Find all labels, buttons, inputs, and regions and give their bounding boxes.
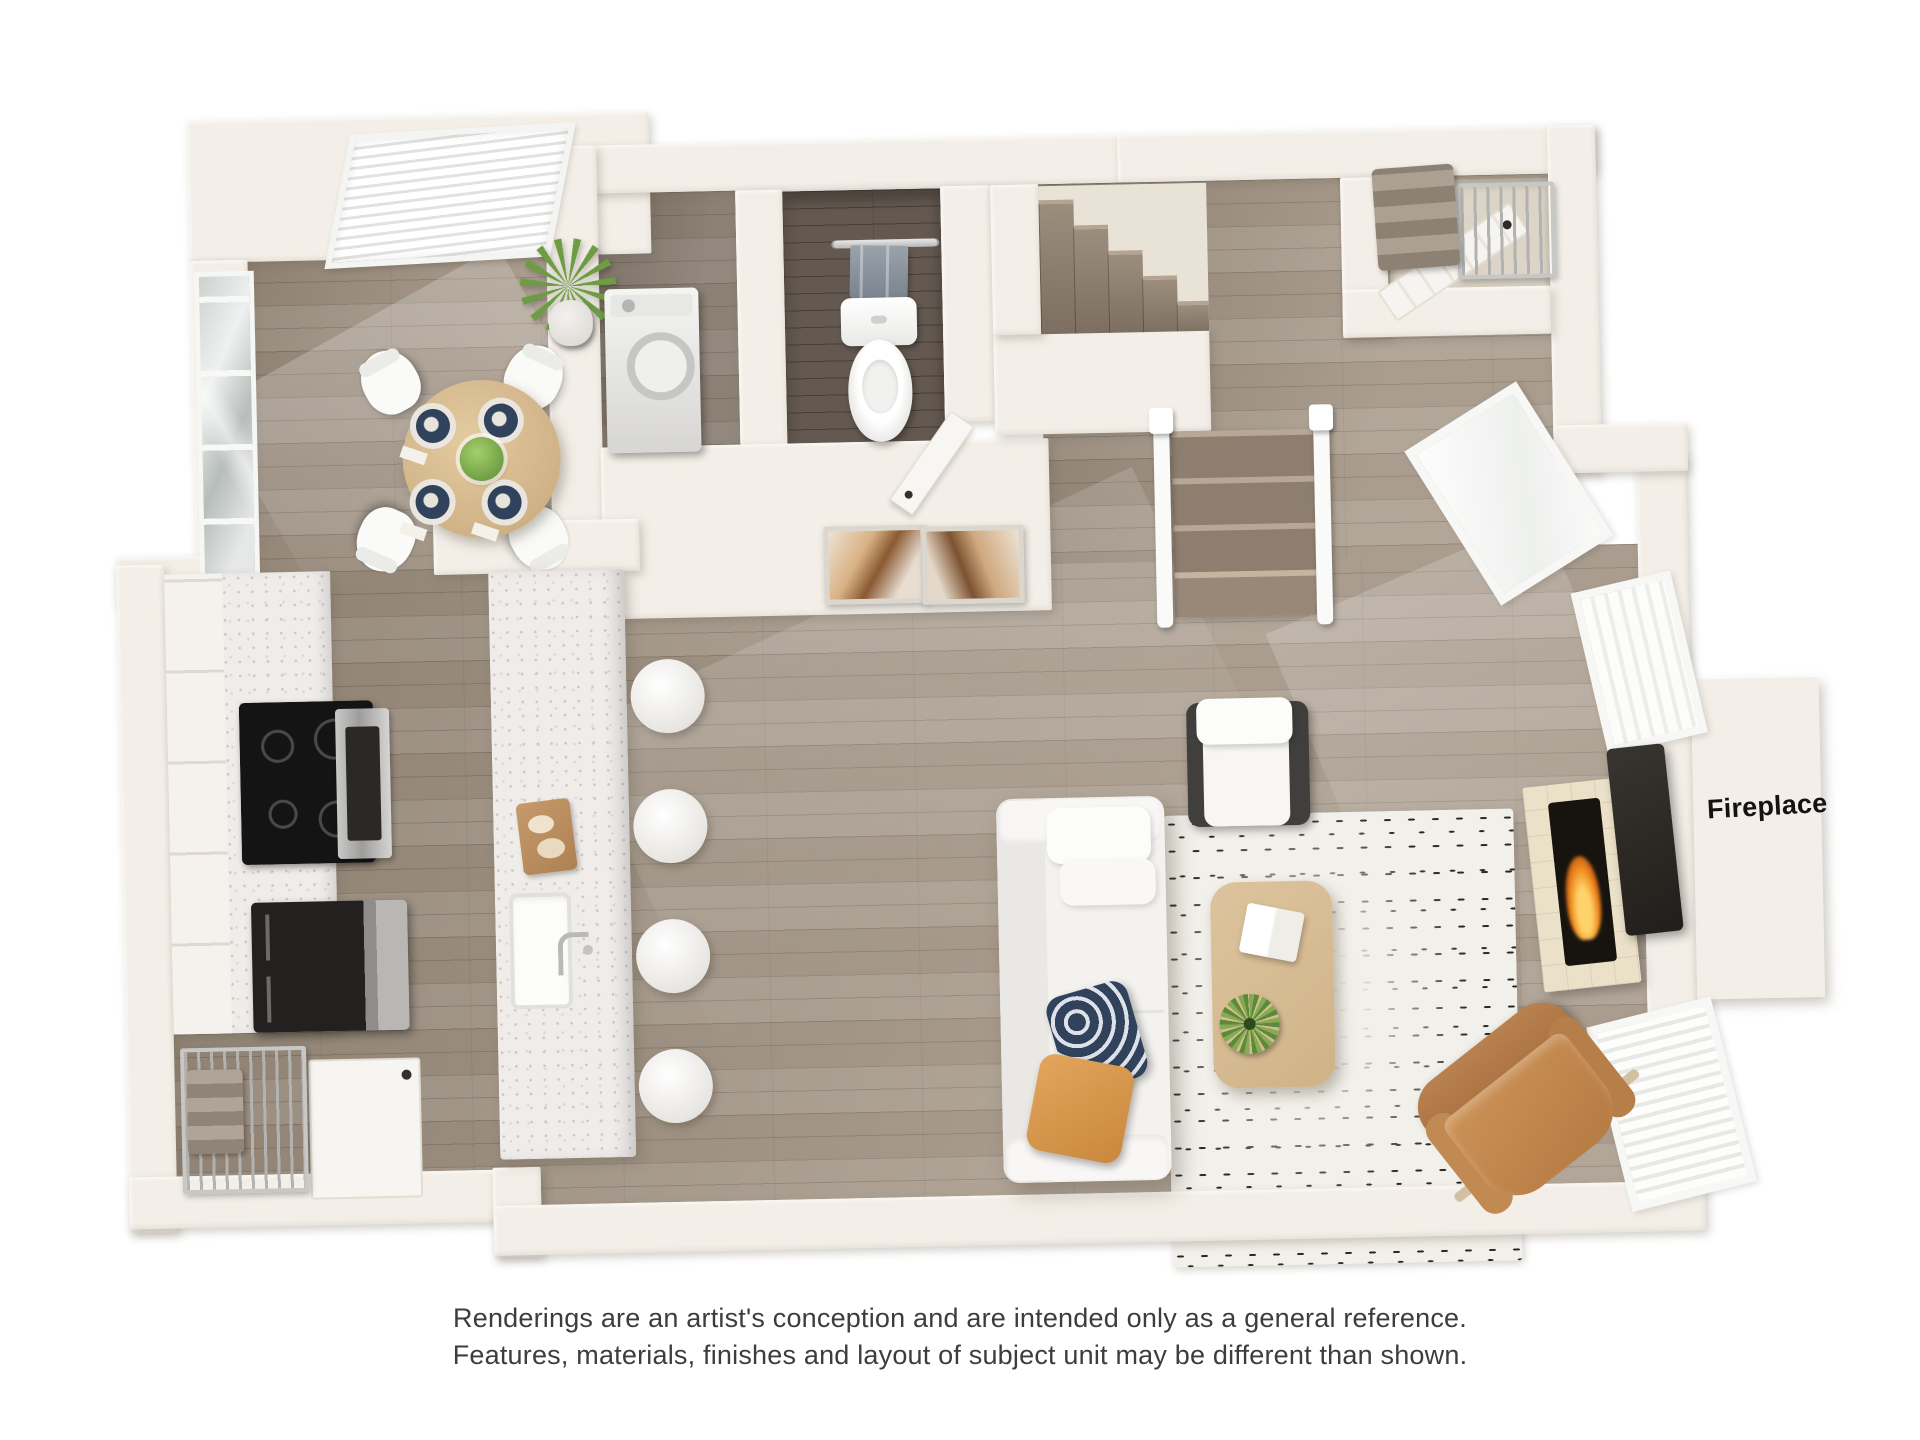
disclaimer-line-1: Renderings are an artist's conception an… xyxy=(0,1300,1920,1337)
refrigerator xyxy=(251,900,410,1033)
wall-east-jog xyxy=(1553,423,1688,474)
flame-icon xyxy=(1562,854,1605,941)
floorplan-rendering-canvas: Fireplace Renderings are an artist's con… xyxy=(0,0,1920,1440)
stair-tread xyxy=(1177,301,1210,335)
stair-step xyxy=(1171,429,1314,480)
linen-shelf xyxy=(1456,181,1556,279)
wall-art-frame xyxy=(921,525,1025,605)
stair-tread xyxy=(1142,275,1178,334)
wall-art-frame xyxy=(823,525,927,605)
lounge-chair-headrest xyxy=(1196,697,1293,745)
faucet xyxy=(558,932,590,976)
newel-post xyxy=(1309,404,1334,430)
disclaimer-line-2: Features, materials, finishes and layout… xyxy=(0,1337,1920,1374)
book xyxy=(1239,903,1305,963)
fireplace-bump-out-wall xyxy=(1691,677,1826,1000)
lounge-chair xyxy=(1186,697,1311,832)
wall-under-stairs xyxy=(993,327,1211,436)
lower-stair-flight xyxy=(1171,429,1317,618)
headrest-pillow xyxy=(1046,806,1151,864)
orange-throw-pillow xyxy=(1024,1051,1137,1165)
wall-entry-closet-south xyxy=(1342,286,1551,338)
disclaimer-text: Renderings are an artist's conception an… xyxy=(0,1300,1920,1374)
storage-closet-door xyxy=(308,1057,423,1199)
wall-stair-west xyxy=(990,184,1041,335)
wall-east-entry xyxy=(1547,125,1602,474)
folded-towels xyxy=(186,1069,244,1154)
stair-step xyxy=(1173,523,1316,574)
stair-tread xyxy=(1107,250,1144,334)
stair-step xyxy=(1172,476,1315,527)
wall-north-entry xyxy=(1117,125,1596,183)
wall-bath-east xyxy=(940,185,995,422)
firebox xyxy=(1548,798,1617,967)
folded-towels xyxy=(1371,163,1460,271)
sliding-glass-door xyxy=(194,271,261,598)
headrest-pillow xyxy=(1059,858,1156,906)
sectional-sofa xyxy=(996,796,1172,1183)
oven xyxy=(335,708,392,859)
upper-stair-flight xyxy=(1038,183,1209,334)
hand-towel xyxy=(850,245,909,302)
wall-laundry-bath xyxy=(735,190,788,465)
newel-post xyxy=(1149,407,1174,433)
floorplan-3d-rendering: Fireplace xyxy=(0,0,1920,1440)
washer xyxy=(604,287,701,453)
stair-tread xyxy=(1038,200,1076,335)
stair-tread xyxy=(1073,225,1110,334)
stair-step xyxy=(1174,570,1317,618)
cutting-board xyxy=(515,798,578,876)
